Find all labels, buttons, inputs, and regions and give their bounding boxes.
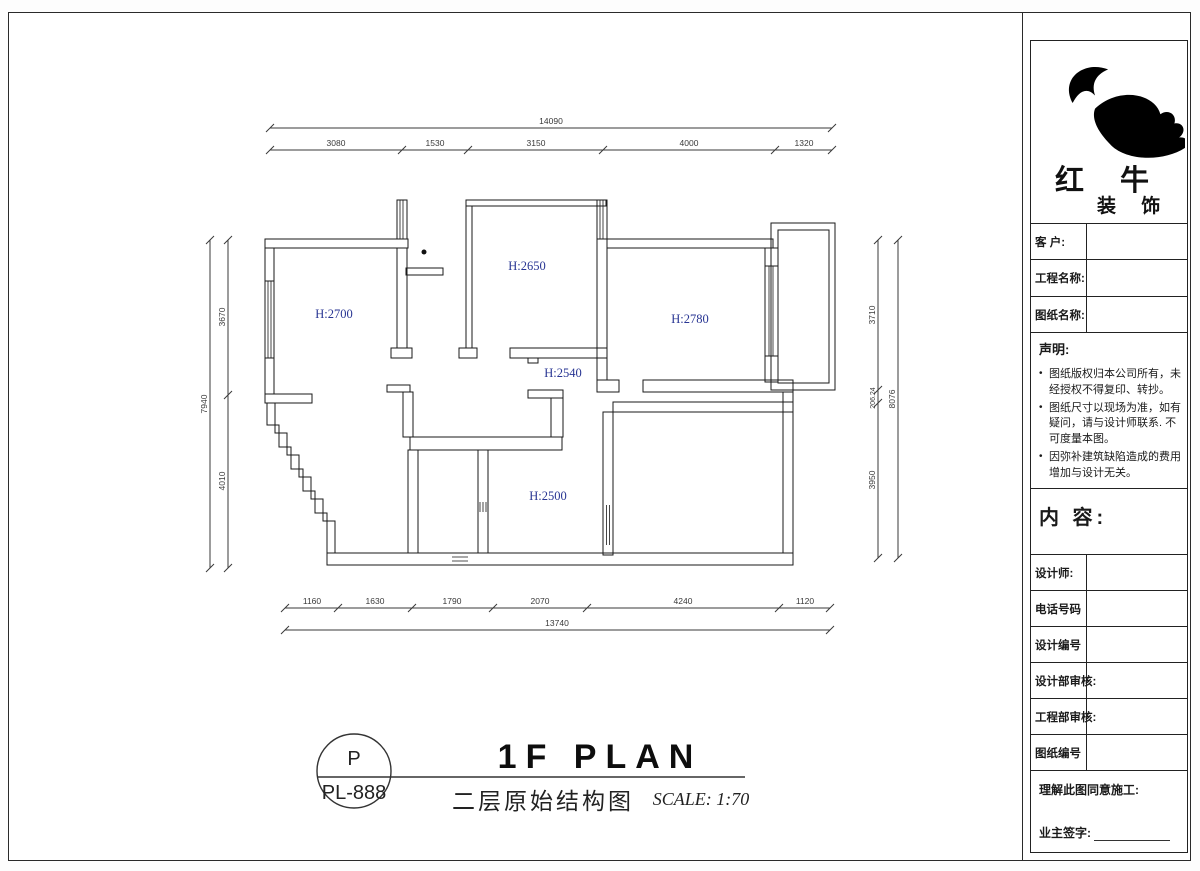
row-design-review-label: 设计部审核: <box>1031 663 1087 698</box>
row-design-review-value <box>1087 663 1187 698</box>
room-label-h2540: H:2540 <box>544 366 582 380</box>
row-engineering-review: 工程部审核: <box>1031 699 1187 735</box>
plan-title-cn: 二层原始结构图 <box>452 788 634 814</box>
statement-item: • 因弥补建筑缺陷造成的费用增加与设计无关。 <box>1039 450 1182 481</box>
field-customer-label: 客 户: <box>1031 224 1087 259</box>
field-customer: 客 户: <box>1031 224 1187 260</box>
sheet-tag-number: PL-888 <box>322 782 387 804</box>
dim-bottom-seg: 1790 <box>443 596 462 606</box>
owner-signature-label: 业主签字: <box>1039 824 1091 841</box>
row-sheet-number-label: 图纸编号 <box>1031 735 1087 770</box>
bullet-icon: • <box>1039 450 1049 481</box>
row-design-number-value <box>1087 627 1187 662</box>
row-engineering-review-label: 工程部审核: <box>1031 699 1087 734</box>
dim-right-overall: 8076 <box>887 389 897 408</box>
dim-left-overall: 7940 <box>199 394 209 413</box>
approval-section: 理解此图同意施工: 业主签字: <box>1031 771 1187 852</box>
dim-top-seg: 1530 <box>426 138 445 148</box>
field-project-name-label: 工程名称: <box>1031 260 1087 296</box>
drawing-title: P PL-888 1F PLAN 二层原始结构图 SCALE: 1:70 <box>317 734 749 814</box>
room-label-h2780: H:2780 <box>671 312 709 326</box>
sidebar-divider <box>1022 12 1023 861</box>
dim-top-overall: 14090 <box>539 116 563 126</box>
dim-right-seg: 206.24 <box>870 387 877 409</box>
room-label-h2650: H:2650 <box>508 259 546 273</box>
dim-bottom-seg: 2070 <box>531 596 550 606</box>
bullet-icon: • <box>1039 401 1049 447</box>
dim-top-seg: 4000 <box>680 138 699 148</box>
row-sheet-number-value <box>1087 735 1187 770</box>
dim-bottom-seg: 4240 <box>674 596 693 606</box>
dim-bottom-seg: 1160 <box>303 596 322 606</box>
statement-text: 因弥补建筑缺陷造成的费用增加与设计无关。 <box>1049 450 1182 481</box>
signature-line <box>1094 827 1170 841</box>
content-heading: 内 容: <box>1031 489 1187 555</box>
row-sheet-number: 图纸编号 <box>1031 735 1187 771</box>
logo-box: 红 牛 装 饰 <box>1031 41 1187 224</box>
row-designer: 设计师: <box>1031 555 1187 591</box>
drawing-sheet: H:2700 H:2650 H:2780 H:2540 H:2500 <box>0 0 1200 871</box>
room-labels: H:2700 H:2650 H:2780 H:2540 H:2500 <box>315 259 709 503</box>
dim-top-seg: 1320 <box>795 138 814 148</box>
sheet-tag-letter: P <box>347 748 360 770</box>
statement-item: • 图纸版权归本公司所有，未经授权不得复印、转抄。 <box>1039 367 1182 398</box>
field-drawing-name: 图纸名称: <box>1031 297 1187 333</box>
approval-line: 理解此图同意施工: <box>1039 781 1181 798</box>
field-drawing-name-label: 图纸名称: <box>1031 297 1087 332</box>
statement-section: 声明: • 图纸版权归本公司所有，未经授权不得复印、转抄。 • 图纸尺寸以现场为… <box>1031 333 1187 489</box>
stairs-outline-inner <box>275 403 335 553</box>
field-project-name: 工程名称: <box>1031 260 1187 297</box>
field-customer-value <box>1087 224 1187 259</box>
dim-top-seg: 3080 <box>327 138 346 148</box>
statement-item: • 图纸尺寸以现场为准，如有疑问，请与设计师联系. 不可度量本图。 <box>1039 401 1182 447</box>
floor-plan-canvas: H:2700 H:2650 H:2780 H:2540 H:2500 <box>0 0 1020 871</box>
bull-logo-icon <box>1035 47 1185 159</box>
row-engineering-review-value <box>1087 699 1187 734</box>
row-phone-label: 电话号码 <box>1031 591 1087 626</box>
dim-right-seg: 3710 <box>867 305 877 324</box>
brand-subname: 装 饰 <box>1097 191 1170 218</box>
dim-left-seg: 3670 <box>217 307 227 326</box>
dim-left-seg: 4010 <box>217 471 227 490</box>
row-phone: 电话号码 <box>1031 591 1187 627</box>
row-phone-value <box>1087 591 1187 626</box>
plan-scale: SCALE: 1:70 <box>653 789 750 809</box>
statement-text: 图纸版权归本公司所有，未经授权不得复印、转抄。 <box>1049 367 1182 398</box>
row-design-number: 设计编号 <box>1031 627 1187 663</box>
dim-top-seg: 3150 <box>527 138 546 148</box>
dim-right-seg: 3950 <box>867 470 877 489</box>
row-design-number-label: 设计编号 <box>1031 627 1087 662</box>
plan-title-en: 1F PLAN <box>498 738 703 776</box>
field-drawing-name-value <box>1087 297 1187 332</box>
field-project-name-value <box>1087 260 1187 296</box>
dim-bottom-seg: 1630 <box>366 596 385 606</box>
dim-bottom-overall: 13740 <box>545 618 569 628</box>
row-designer-value <box>1087 555 1187 590</box>
row-design-review: 设计部审核: <box>1031 663 1187 699</box>
statement-heading: 声明: <box>1039 341 1182 359</box>
dim-bottom-seg: 1120 <box>796 596 815 606</box>
bullet-icon: • <box>1039 367 1049 398</box>
statement-text: 图纸尺寸以现场为准，如有疑问，请与设计师联系. 不可度量本图。 <box>1049 401 1182 447</box>
stairs-outline <box>267 403 327 553</box>
row-designer-label: 设计师: <box>1031 555 1087 590</box>
room-label-h2500: H:2500 <box>529 489 567 503</box>
title-block: 红 牛 装 饰 客 户: 工程名称: 图纸名称: 声明: • 图纸版权归本公司所… <box>1030 40 1188 853</box>
column-dot <box>422 250 427 255</box>
walls <box>265 200 835 565</box>
room-label-h2700: H:2700 <box>315 307 353 321</box>
